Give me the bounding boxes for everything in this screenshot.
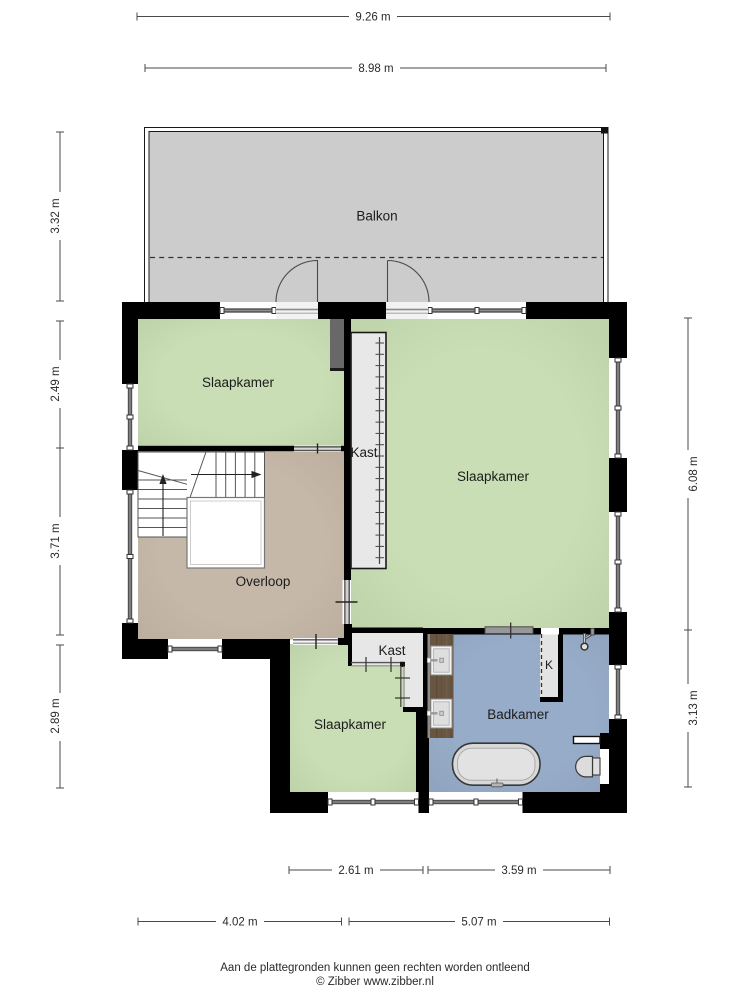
svg-text:2.89 m: 2.89 m <box>50 698 62 733</box>
svg-text:Aan de plattegronden kunnen ge: Aan de plattegronden kunnen geen rechten… <box>220 962 529 974</box>
svg-text:3.32 m: 3.32 m <box>50 198 62 233</box>
svg-text:6.08 m: 6.08 m <box>688 456 700 491</box>
svg-text:5.07 m: 5.07 m <box>461 917 496 929</box>
svg-text:K: K <box>545 658 553 672</box>
svg-text:Slaapkamer: Slaapkamer <box>202 375 275 390</box>
svg-text:Slaapkamer: Slaapkamer <box>314 717 387 732</box>
svg-text:3.13 m: 3.13 m <box>688 690 700 725</box>
svg-text:Overloop: Overloop <box>236 574 291 589</box>
svg-text:Kast: Kast <box>350 445 377 460</box>
svg-text:3.71 m: 3.71 m <box>50 523 62 558</box>
svg-text:Balkon: Balkon <box>356 209 397 224</box>
svg-text:Kast: Kast <box>378 643 405 658</box>
svg-text:2.49 m: 2.49 m <box>50 366 62 401</box>
svg-text:© Zibber www.zibber.nl: © Zibber www.zibber.nl <box>316 976 434 988</box>
svg-text:8.98 m: 8.98 m <box>358 63 393 75</box>
svg-text:9.26 m: 9.26 m <box>355 12 390 24</box>
svg-text:4.02 m: 4.02 m <box>222 917 257 929</box>
svg-text:Badkamer: Badkamer <box>487 707 549 722</box>
svg-text:3.59 m: 3.59 m <box>501 865 536 877</box>
svg-text:Slaapkamer: Slaapkamer <box>457 469 530 484</box>
svg-text:2.61 m: 2.61 m <box>338 865 373 877</box>
